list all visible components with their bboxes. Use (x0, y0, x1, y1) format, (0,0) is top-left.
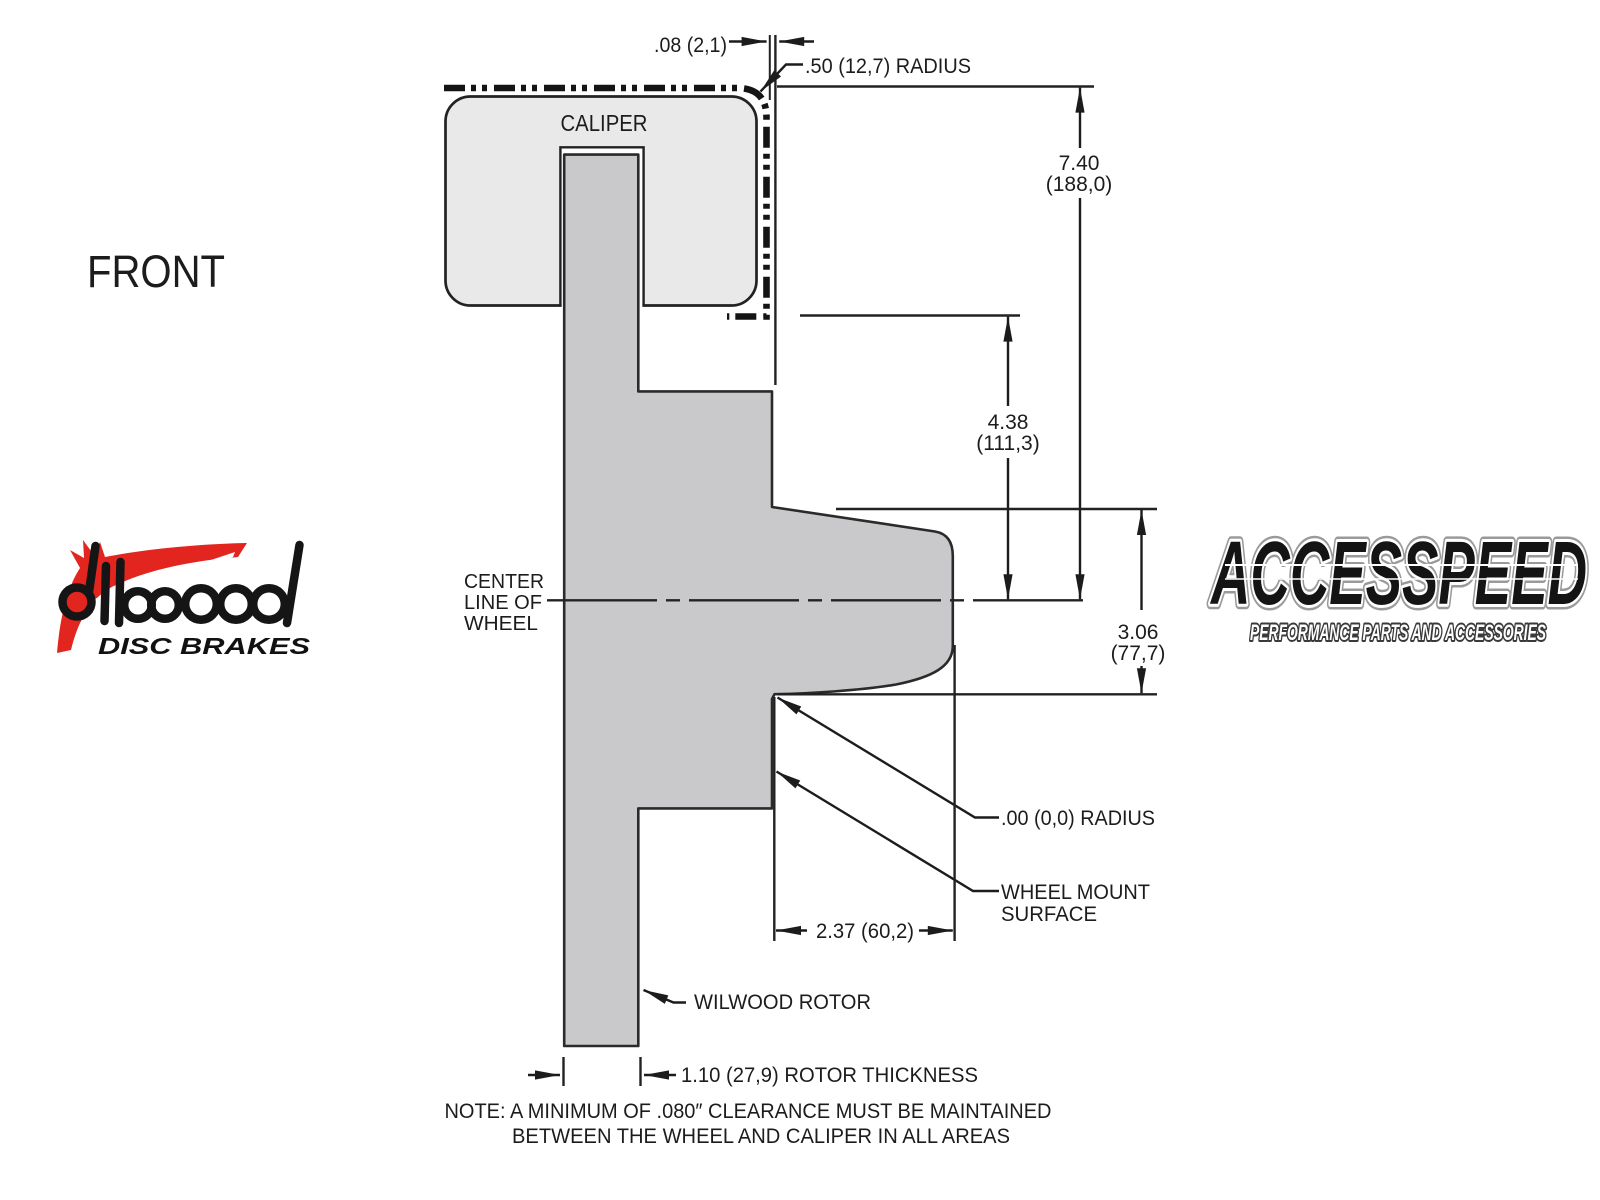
svg-text:4.38: 4.38 (988, 411, 1029, 434)
svg-text:3.06: 3.06 (1118, 621, 1159, 644)
svg-text:WILWOOD ROTOR: WILWOOD ROTOR (694, 991, 871, 1014)
svg-text:(77,7): (77,7) (1111, 642, 1166, 665)
svg-text:SURFACE: SURFACE (1001, 903, 1097, 926)
svg-text:FRONT: FRONT (87, 246, 225, 297)
svg-text:BETWEEN THE WHEEL AND CALIPER: BETWEEN THE WHEEL AND CALIPER IN ALL ARE… (512, 1125, 1010, 1148)
svg-text:WHEEL: WHEEL (464, 613, 538, 635)
svg-text:(111,3): (111,3) (976, 432, 1039, 455)
svg-text:1.10 (27,9) ROTOR THICKNESS: 1.10 (27,9) ROTOR THICKNESS (681, 1064, 978, 1087)
svg-text:CALIPER: CALIPER (561, 110, 648, 136)
svg-text:WHEEL MOUNT: WHEEL MOUNT (1001, 881, 1150, 904)
svg-text:(188,0): (188,0) (1046, 173, 1113, 196)
svg-text:2.37 (60,2): 2.37 (60,2) (816, 920, 914, 943)
svg-text:.00 (0,0) RADIUS: .00 (0,0) RADIUS (1001, 807, 1155, 830)
svg-text:DISC BRAKES: DISC BRAKES (98, 633, 311, 659)
svg-text:ACCESSPEED: ACCESSPEED (1210, 524, 1587, 624)
svg-text:.08 (2,1): .08 (2,1) (654, 34, 727, 57)
svg-text:PERFORMANCE PARTS AND ACCESSOR: PERFORMANCE PARTS AND ACCESSORIES (1250, 620, 1546, 645)
svg-text:LINE OF: LINE OF (464, 592, 542, 614)
svg-text:CENTER: CENTER (464, 571, 544, 593)
svg-text:NOTE: A MINIMUM OF .080″ CLEAR: NOTE: A MINIMUM OF .080″ CLEARANCE MUST … (445, 1100, 1052, 1123)
svg-text:.50 (12,7) RADIUS: .50 (12,7) RADIUS (805, 55, 971, 78)
svg-text:7.40: 7.40 (1059, 152, 1100, 175)
